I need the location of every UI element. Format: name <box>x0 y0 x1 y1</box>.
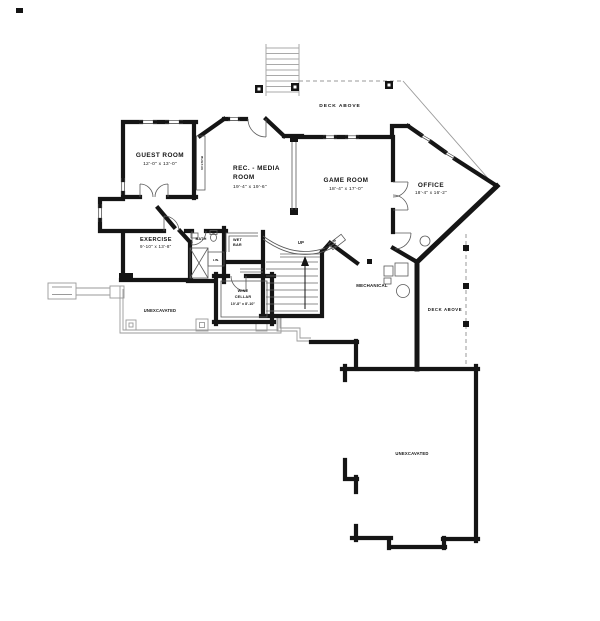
furnace <box>384 266 393 276</box>
guest-room-label: GUEST ROOM <box>136 152 184 159</box>
game-room-label: GAME ROOM <box>324 177 369 184</box>
hvac-unit <box>395 263 408 276</box>
floor-plan-sheet: GUEST ROOM 12'-0" x 13'-0" REC. - MEDIA … <box>0 0 600 621</box>
game-room-dims: 18'-4" x 17'-0" <box>329 186 363 192</box>
office-label: OFFICE <box>418 182 444 189</box>
guest-room-dims: 12'-0" x 13'-0" <box>143 161 177 167</box>
deck-above-right <box>463 234 469 364</box>
deck-posts-top <box>255 81 393 93</box>
exercise-dims: 9'-10" x 13'-8" <box>140 244 172 249</box>
up-label: UP <box>298 240 304 245</box>
unexcavated-main-label: UNEXCAVATED <box>395 451 428 456</box>
mechanical-label: MECHANICAL <box>356 283 388 288</box>
water-heater <box>397 285 410 298</box>
wine-cellar-dims: 10'-8" x 8'-10" <box>231 302 256 306</box>
office-dims: 18'-4" x 16'-2" <box>415 190 447 195</box>
rec-media-dims: 19'-4" x 19'-6" <box>233 184 267 190</box>
colonnade-half-wall <box>292 142 296 210</box>
built-in-guest-label: BUILT-IN <box>200 156 204 170</box>
wine-racks <box>221 281 267 317</box>
wine-cellar-label-1: WINE <box>238 289 249 293</box>
deck-above-top-label: DECK ABOVE <box>319 103 360 109</box>
wine-cellar-label-2: CELLAR <box>235 295 252 299</box>
water-tank <box>420 236 430 246</box>
page-corner-mark <box>16 8 23 13</box>
deck-above-right-label: DECK ABOVE <box>428 307 463 312</box>
stair-direction-arrow <box>301 256 309 266</box>
deck-above-top <box>255 81 493 184</box>
wet-bar-label-1: WET <box>233 238 243 242</box>
rec-media-label-2: ROOM <box>233 174 255 181</box>
exercise-label: EXERCISE <box>140 237 172 243</box>
rec-media-label-1: REC. - MEDIA <box>233 165 280 172</box>
floor-plan-svg: GUEST ROOM 12'-0" x 13'-0" REC. - MEDIA … <box>0 0 600 621</box>
unexcavated-left-label: UNEXCAVATED <box>144 308 176 313</box>
linen-label: LIN. <box>213 258 219 262</box>
bath-label: BATH <box>195 237 206 241</box>
wet-bar-label-2: BAR <box>233 243 242 247</box>
doors <box>140 119 411 291</box>
wet-bar-counter <box>226 233 258 252</box>
